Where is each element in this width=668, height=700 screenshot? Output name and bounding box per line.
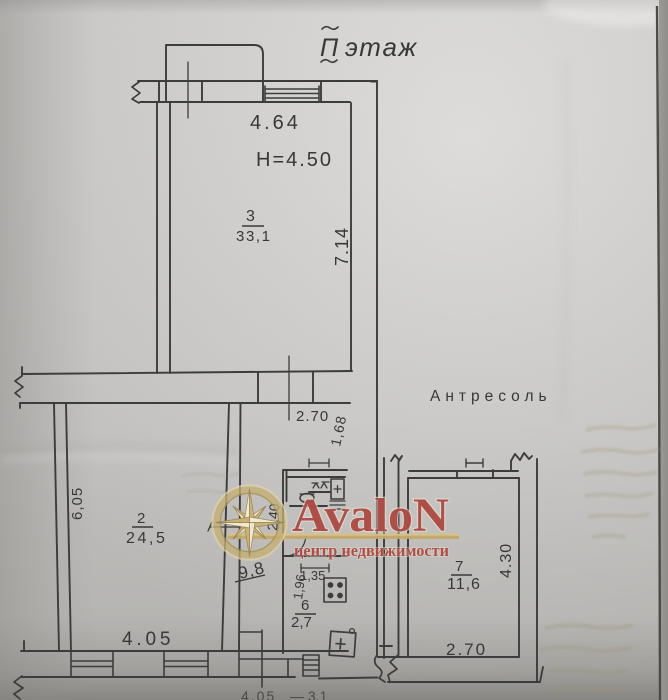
- svg-text:33,1: 33,1: [236, 228, 272, 245]
- svg-text:2: 2: [137, 510, 145, 527]
- svg-text:3: 3: [246, 208, 255, 225]
- svg-text:2.70: 2.70: [296, 408, 329, 425]
- svg-text:П: П: [320, 34, 339, 62]
- svg-text:Антресоль: Антресоль: [430, 388, 552, 405]
- svg-text:— 3,1: — 3,1: [290, 688, 328, 700]
- svg-text:6: 6: [301, 597, 309, 614]
- svg-text:2.70: 2.70: [446, 640, 487, 659]
- svg-text:7: 7: [455, 558, 463, 575]
- svg-text:4.30: 4.30: [498, 543, 515, 578]
- svg-text:6,05: 6,05: [69, 487, 86, 520]
- svg-text:центр недвижимости: центр недвижимости: [294, 541, 449, 560]
- svg-text:2,7: 2,7: [291, 614, 312, 631]
- svg-text:7.14: 7.14: [332, 227, 352, 266]
- svg-text:H=4.50: H=4.50: [256, 149, 333, 171]
- svg-text:4.05: 4.05: [241, 688, 276, 700]
- svg-text:11,6: 11,6: [447, 576, 481, 593]
- svg-text:4.05: 4.05: [122, 629, 174, 650]
- svg-text:24,5: 24,5: [126, 530, 168, 547]
- svg-text:4.64: 4.64: [250, 112, 301, 134]
- svg-text:эmаж: эmаж: [345, 32, 418, 62]
- svg-text:AvaloN: AvaloN: [292, 489, 449, 542]
